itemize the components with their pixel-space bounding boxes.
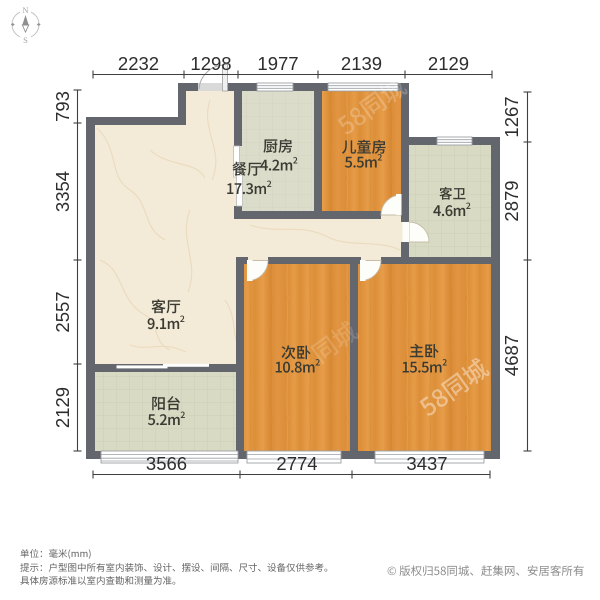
svg-text:2774: 2774 xyxy=(276,453,317,474)
svg-text:2879: 2879 xyxy=(501,180,522,221)
svg-text:3437: 3437 xyxy=(406,453,447,474)
svg-text:S: S xyxy=(23,35,28,45)
svg-text:2129: 2129 xyxy=(52,387,73,428)
svg-text:2139: 2139 xyxy=(341,53,382,74)
svg-text:N: N xyxy=(22,5,28,15)
svg-text:1977: 1977 xyxy=(257,53,298,74)
svg-text:3354: 3354 xyxy=(52,171,73,212)
svg-text:2232: 2232 xyxy=(118,53,159,74)
svg-text:1267: 1267 xyxy=(501,96,522,137)
svg-text:4687: 4687 xyxy=(501,335,522,376)
svg-text:2129: 2129 xyxy=(428,53,469,74)
svg-text:3566: 3566 xyxy=(146,453,187,474)
svg-text:1298: 1298 xyxy=(190,53,231,74)
svg-text:793: 793 xyxy=(52,91,73,122)
svg-text:2557: 2557 xyxy=(52,291,73,332)
